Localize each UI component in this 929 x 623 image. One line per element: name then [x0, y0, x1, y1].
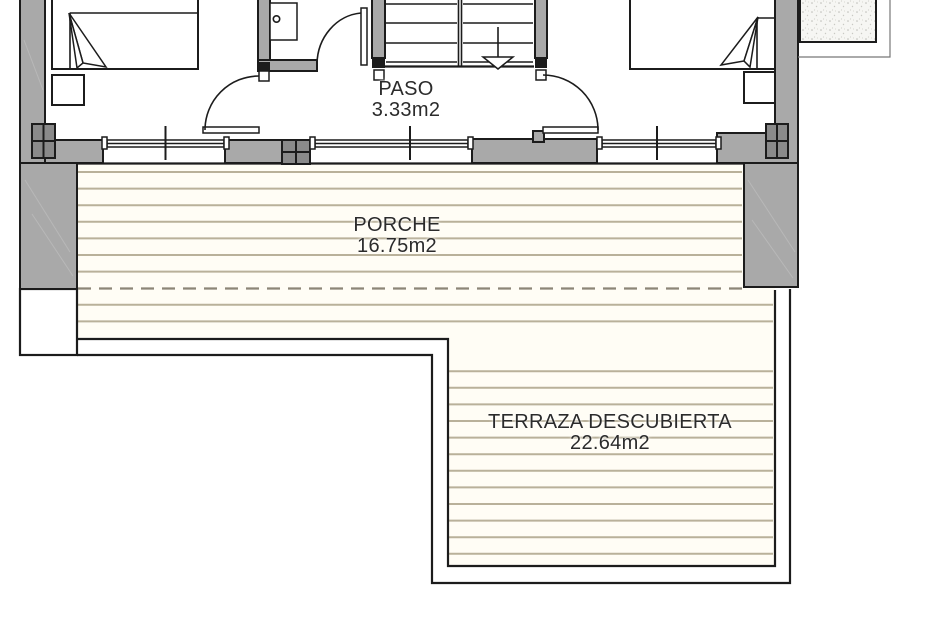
door-leaf-bedroom-right: [543, 127, 598, 133]
stair-divider: [459, 0, 462, 66]
jamb-block: [259, 71, 269, 81]
textured-pad: [800, 0, 876, 42]
stair-treads: [386, 4, 533, 62]
bedroom-right-furniture: [630, 0, 775, 103]
porch-corner-block: [20, 289, 77, 355]
label-terraza: TERRAZA DESCUBIERTA 22.64m2: [460, 412, 760, 454]
door-swing-arc: [543, 75, 598, 130]
label-porche: PORCHE 16.75m2: [297, 215, 497, 257]
room-name: TERRAZA DESCUBIERTA: [460, 412, 760, 433]
stair-wall-right: [535, 0, 547, 58]
wall-cap: [372, 58, 385, 68]
floor-plan: PASO 3.33m2 PORCHE 16.75m2 TERRAZA DESCU…: [0, 0, 929, 623]
bedroom-left-furniture: [52, 0, 198, 105]
bathroom-wall-vertical: [258, 0, 270, 62]
nightstand: [52, 75, 84, 105]
stair-wall-left: [372, 0, 385, 58]
right-porch-pillar: [744, 163, 798, 287]
bathroom-fixture: [270, 3, 297, 40]
room-area: 22.64m2: [460, 433, 760, 454]
wall-cap: [535, 58, 547, 68]
door-swing-arc: [317, 13, 361, 64]
room-area: 16.75m2: [297, 236, 497, 257]
label-paso: PASO 3.33m2: [306, 79, 506, 121]
stipple-panel: [798, 0, 890, 57]
wall-cap: [258, 62, 270, 71]
staircase: [385, 0, 534, 69]
windows: [102, 126, 721, 160]
south-wall-segment-mid1: [225, 140, 282, 163]
room-name: PORCHE: [297, 215, 497, 236]
left-porch-pillar: [20, 163, 77, 289]
door-swing-arc: [205, 76, 259, 130]
nightstand: [744, 72, 775, 103]
door-leaf-bedroom-left: [203, 127, 259, 133]
room-name: PASO: [306, 79, 506, 100]
door-leaf-bathroom: [361, 8, 367, 65]
room-area: 3.33m2: [306, 100, 506, 121]
